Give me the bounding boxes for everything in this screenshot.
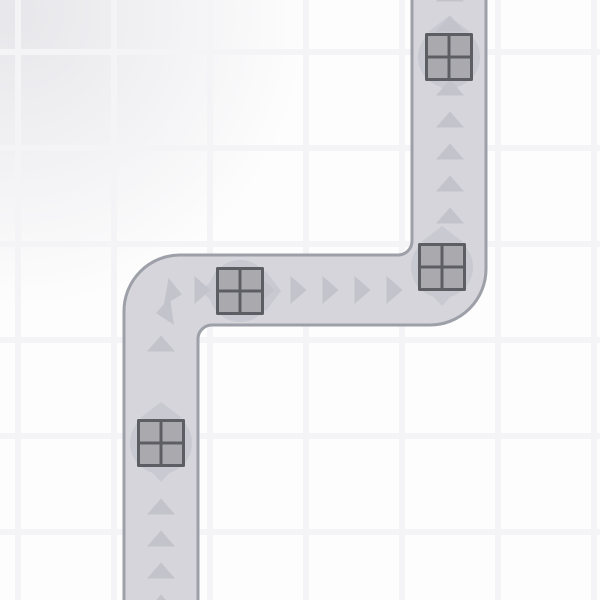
crate-pane <box>242 270 262 290</box>
game-viewport[interactable] <box>0 0 600 600</box>
crate-pane <box>421 269 441 289</box>
crate-pane <box>451 59 471 79</box>
crate-pane <box>444 246 464 266</box>
crate-pane <box>219 293 239 313</box>
crate-pane <box>219 270 239 290</box>
crate-pane <box>163 422 183 442</box>
crate-pane <box>428 59 448 79</box>
crate-pane <box>428 36 448 56</box>
supply-crate[interactable] <box>137 419 185 467</box>
crate-pane <box>140 422 160 442</box>
crate-pane <box>421 246 441 266</box>
crate-pane <box>242 293 262 313</box>
game-scene <box>0 0 600 600</box>
direction-arrow-icon <box>436 0 464 2</box>
crate-pane <box>451 36 471 56</box>
crate-pane <box>140 445 160 465</box>
road-path <box>124 0 486 600</box>
supply-crate[interactable] <box>216 267 264 315</box>
supply-crate[interactable] <box>425 33 473 81</box>
supply-crate[interactable] <box>418 243 466 291</box>
crate-pane <box>163 445 183 465</box>
crate-pane <box>444 269 464 289</box>
